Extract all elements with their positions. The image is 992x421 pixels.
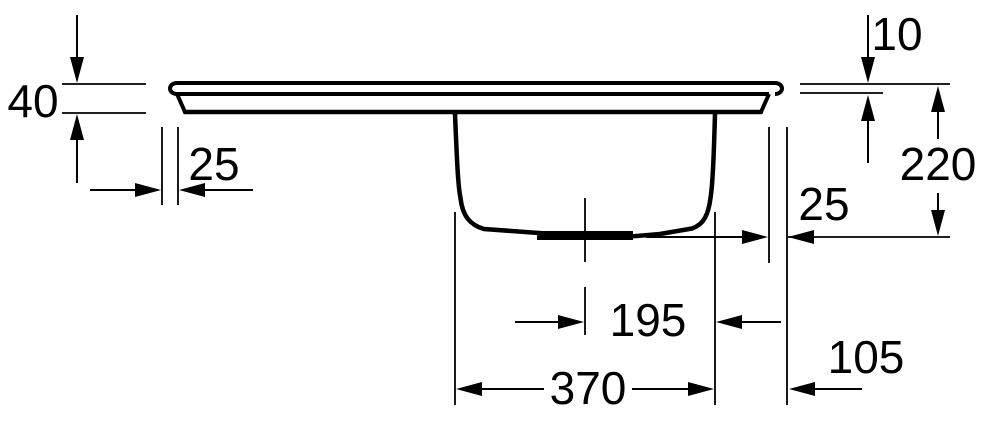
dim-label-105: 105 xyxy=(828,331,905,383)
rim-right-lip xyxy=(775,83,782,94)
rim-right-drip-edge xyxy=(761,94,769,112)
arrow-right-icon xyxy=(135,183,161,197)
arrow-up-icon xyxy=(861,95,875,121)
dim-label-25-left: 25 xyxy=(188,138,239,190)
arrow-right-icon xyxy=(558,315,584,329)
arrow-down-icon xyxy=(70,57,84,83)
dimension-drain-offset-195: 195 xyxy=(515,294,781,346)
arrow-left-icon xyxy=(456,382,482,396)
drawing-svg: 40 25 10 220 25 xyxy=(0,0,992,421)
arrow-left-icon xyxy=(716,315,742,329)
dimension-rim-height-40: 40 xyxy=(7,15,146,183)
dim-label-10: 10 xyxy=(871,8,922,60)
arrow-left-icon xyxy=(789,382,815,396)
arrow-up-icon xyxy=(70,114,84,140)
arrow-down-icon xyxy=(861,57,875,83)
dim-label-25-right: 25 xyxy=(798,178,849,230)
rim-left-drip-edge xyxy=(177,94,185,112)
arrow-left-icon xyxy=(788,230,814,244)
dimension-right-overhang-25: 25 xyxy=(646,127,850,405)
arrow-up-icon xyxy=(931,86,945,112)
dimension-edge-distance-105: 105 xyxy=(789,331,904,396)
dim-label-40: 40 xyxy=(7,75,58,127)
rim-left-lip xyxy=(170,83,177,94)
dim-label-195: 195 xyxy=(610,294,687,346)
dim-label-370: 370 xyxy=(550,362,627,414)
arrow-down-icon xyxy=(931,210,945,236)
dim-label-220: 220 xyxy=(900,138,977,190)
arrow-right-icon xyxy=(742,230,768,244)
arrow-right-icon xyxy=(688,382,714,396)
sink-technical-drawing: 40 25 10 220 25 xyxy=(0,0,992,421)
dimension-left-overhang-25: 25 xyxy=(90,127,253,205)
sink-rim-profile xyxy=(170,83,782,112)
